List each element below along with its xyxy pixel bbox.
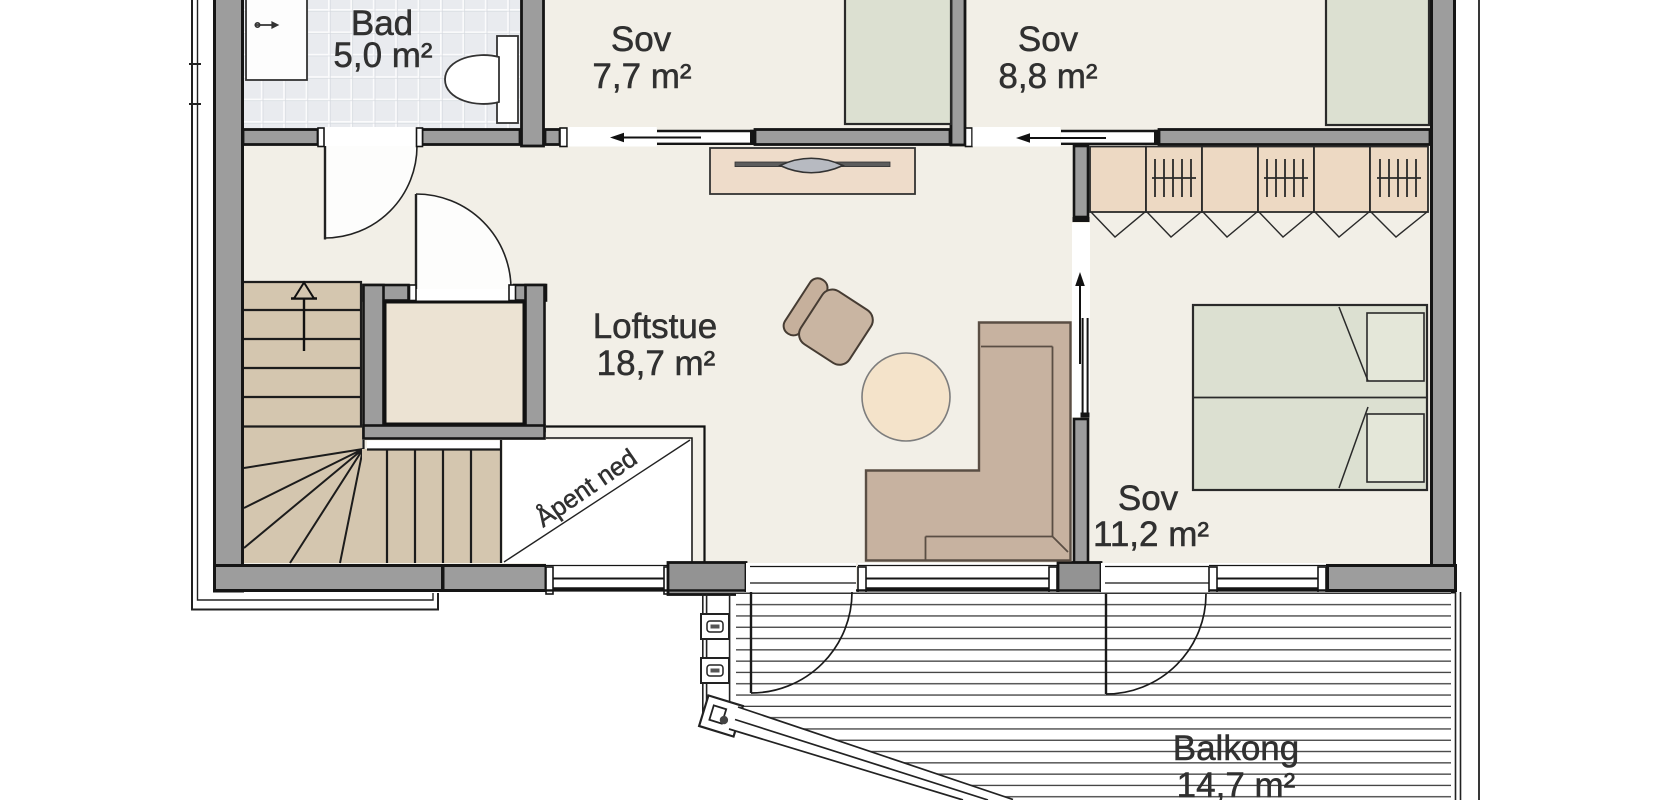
svg-text:Balkong: Balkong [1173, 729, 1299, 768]
svg-text:Sov: Sov [1118, 479, 1179, 518]
svg-text:18,7 m²: 18,7 m² [597, 344, 716, 383]
svg-text:Sov: Sov [611, 20, 672, 59]
svg-text:8,8 m²: 8,8 m² [998, 57, 1097, 96]
svg-text:5,0 m²: 5,0 m² [333, 36, 432, 75]
svg-text:Loftstue: Loftstue [593, 307, 718, 346]
svg-text:7,7 m²: 7,7 m² [592, 57, 691, 96]
svg-text:11,2 m²: 11,2 m² [1093, 515, 1209, 554]
svg-text:14,7 m²: 14,7 m² [1177, 766, 1296, 800]
svg-text:Sov: Sov [1018, 20, 1079, 59]
